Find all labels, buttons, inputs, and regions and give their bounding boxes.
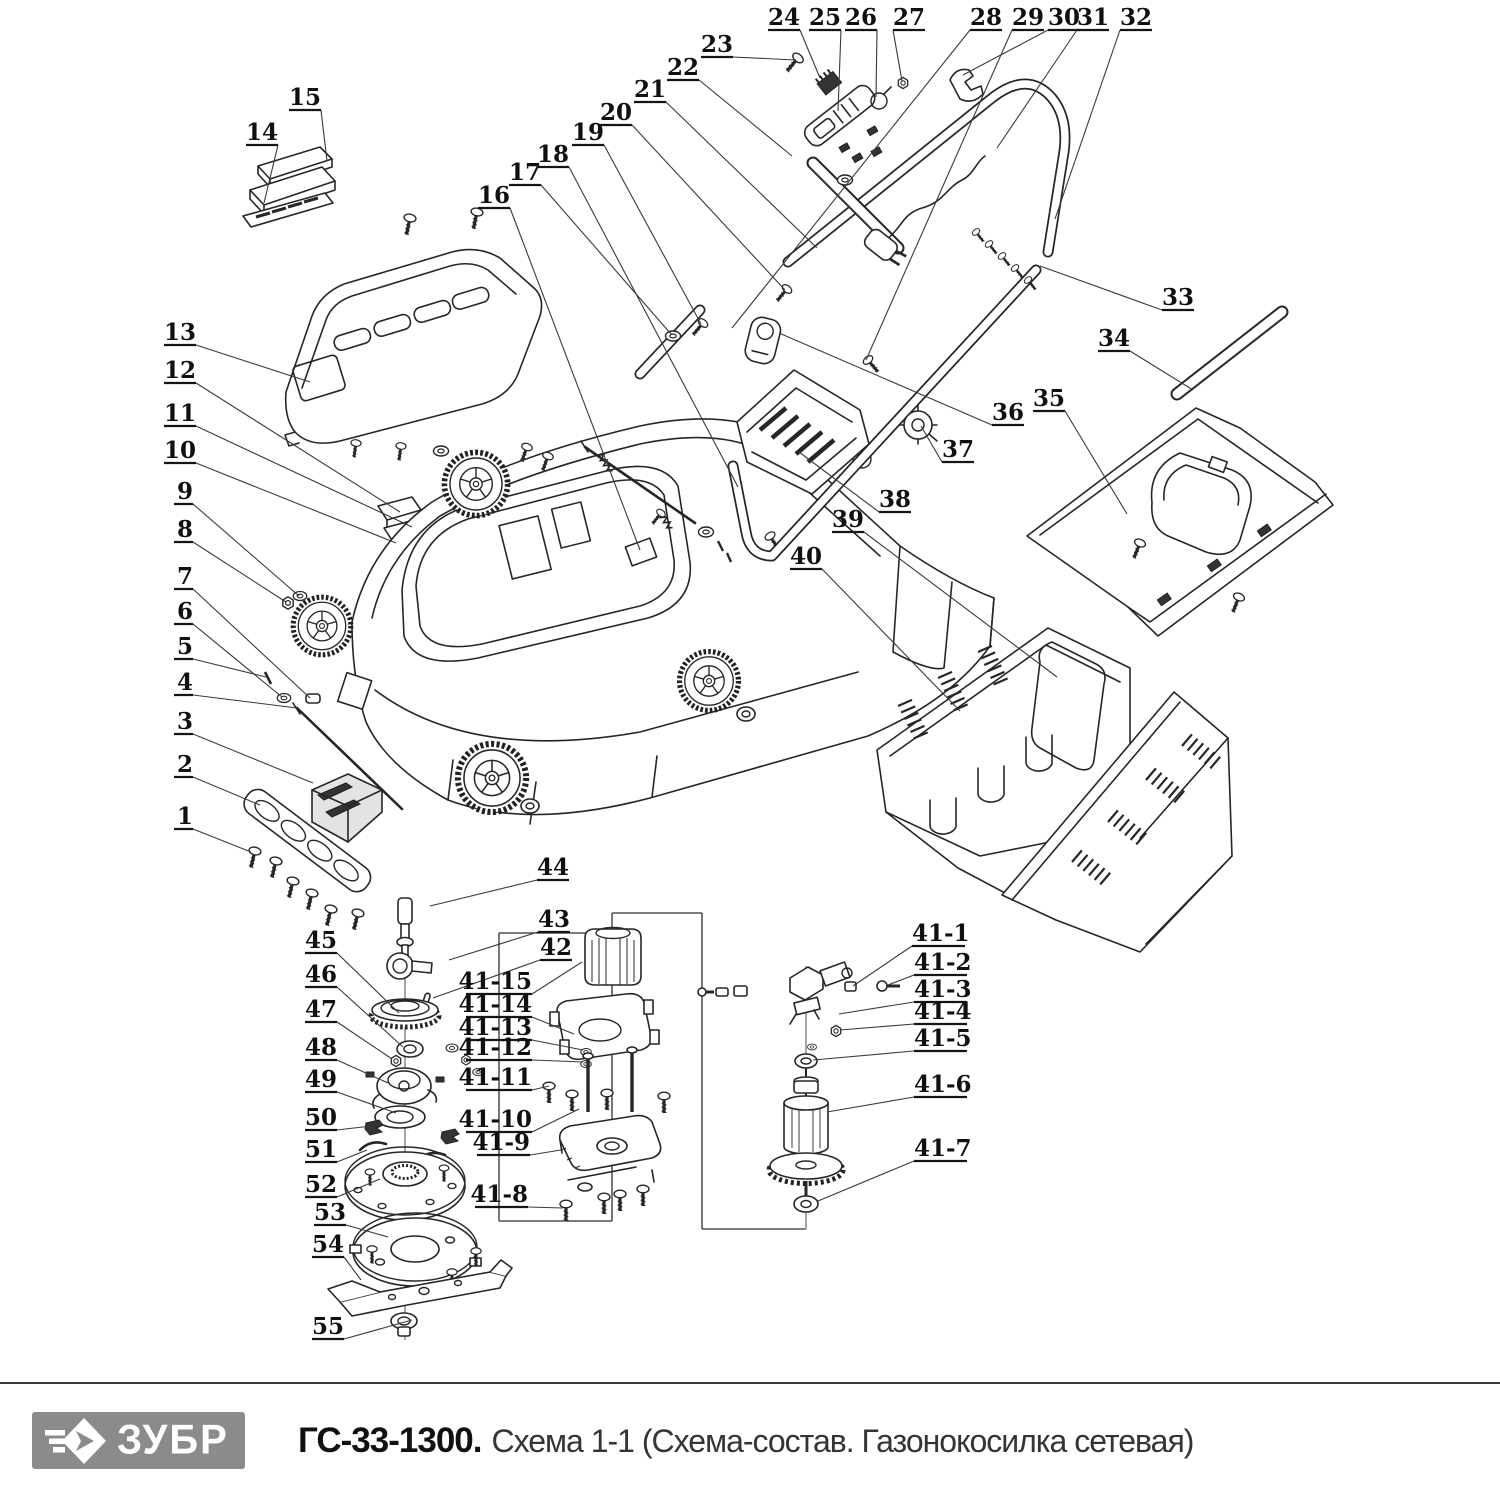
part-number-12: 12 (164, 357, 196, 384)
part-number-22: 22 (667, 54, 699, 81)
leader-line (838, 30, 841, 111)
part-number-15: 15 (289, 84, 321, 111)
part-number-18: 18 (537, 141, 569, 168)
part-number-41-11: 41-11 (458, 1064, 532, 1091)
leader-line (853, 946, 912, 986)
leader-line (532, 1060, 583, 1062)
part-number-39: 39 (832, 506, 864, 533)
part-number-10: 10 (164, 437, 196, 464)
leader-line (337, 1150, 367, 1162)
part-number-41-1: 41-1 (912, 920, 970, 947)
wheel (680, 652, 739, 711)
footer-divider (0, 1382, 1500, 1384)
leader-line (604, 145, 701, 324)
leader-line (666, 102, 817, 248)
leader-line (893, 30, 902, 81)
leader-line (1040, 266, 1162, 310)
part-number-2: 2 (177, 751, 193, 778)
part-number-37: 37 (942, 436, 974, 463)
power-cord (862, 156, 985, 270)
rotor (784, 1096, 828, 1154)
leader-line (193, 777, 260, 805)
part-number-45: 45 (305, 927, 337, 954)
stator-block (585, 928, 641, 986)
leader-line (337, 1022, 392, 1059)
part-number-11: 11 (164, 400, 196, 427)
part-number-28: 28 (970, 4, 1002, 31)
wheel (444, 452, 507, 515)
part-number-16: 16 (478, 182, 510, 209)
part-number-1: 1 (177, 803, 193, 830)
part-number-41-2: 41-2 (914, 949, 972, 976)
spindle-bolt (397, 898, 413, 957)
part-number-44: 44 (537, 854, 569, 881)
part-number-8: 8 (177, 516, 193, 543)
part-number-43: 43 (538, 906, 570, 933)
leader-line (876, 30, 877, 97)
leader-line (888, 975, 914, 985)
leader-line (632, 125, 785, 290)
leader-line (921, 426, 942, 462)
long-screws (583, 1047, 637, 1112)
leader-line (732, 30, 970, 328)
part-number-47: 47 (305, 996, 337, 1023)
part-number-40: 40 (790, 543, 822, 570)
cam-lock-lever (743, 315, 783, 366)
part-number-50: 50 (305, 1104, 337, 1131)
sheet-description: Схема 1-1 (Схема-состав. Газонокосилка с… (491, 1423, 1193, 1460)
leader-line (866, 30, 1012, 360)
part-number-33: 33 (1162, 284, 1194, 311)
drive-pulley (371, 999, 439, 1027)
armature-column (698, 962, 900, 1230)
brush-holder-bracket (790, 962, 852, 1024)
leader-line (337, 1060, 388, 1083)
part-number-41-4: 41-4 (914, 998, 972, 1025)
leader-line (800, 30, 820, 78)
leader-line (193, 659, 266, 677)
part-number-27: 27 (893, 4, 925, 31)
leader-line (193, 624, 282, 697)
part-number-41-8: 41-8 (470, 1181, 528, 1208)
leader-line (963, 30, 1048, 75)
leader-line (193, 829, 251, 852)
part-number-25: 25 (809, 4, 841, 31)
wheel (293, 597, 351, 655)
leader-line (541, 185, 671, 334)
part-number-30: 30 (1048, 4, 1080, 31)
part-number-26: 26 (845, 4, 877, 31)
rear-housing (1027, 408, 1333, 636)
leader-line (193, 504, 299, 596)
part-number-21: 21 (634, 76, 666, 103)
fan-gear (769, 1153, 843, 1184)
leader-line (449, 932, 538, 960)
blade-flange-disc (345, 1147, 465, 1220)
part-number-9: 9 (177, 478, 193, 505)
part-number-51: 51 (305, 1136, 337, 1163)
part-number-31: 31 (1077, 4, 1109, 31)
zubr-diamond-arrow-icon (44, 1415, 108, 1467)
part-number-41-9: 41-9 (472, 1129, 530, 1156)
part-number-24: 24 (768, 4, 800, 31)
leader-line (827, 1097, 914, 1112)
part-number-42: 42 (540, 934, 572, 961)
part-number-41-5: 41-5 (914, 1025, 972, 1052)
leader-line (840, 1024, 914, 1030)
clutch-housing (366, 1068, 444, 1108)
leader-line (839, 1002, 914, 1014)
part-number-20: 20 (600, 99, 632, 126)
leader-line (430, 880, 537, 906)
blade-adapter (350, 1213, 481, 1286)
part-number-32: 32 (1120, 4, 1152, 31)
part-number-53: 53 (314, 1199, 346, 1226)
motor-top-cover (285, 207, 542, 446)
part-number-7: 7 (177, 563, 193, 590)
leader-line (193, 734, 313, 783)
leader-line (1130, 351, 1193, 390)
leader-line (196, 463, 396, 543)
leader-line (699, 80, 792, 156)
part-number-41-12: 41-12 (458, 1034, 532, 1061)
battery-cover-parts (243, 147, 335, 227)
part-number-41-7: 41-7 (914, 1135, 972, 1162)
leader-line (530, 1150, 561, 1155)
field-coil-housing (550, 994, 659, 1060)
part-number-49: 49 (305, 1066, 337, 1093)
part-number-54: 54 (312, 1231, 344, 1258)
rear-parts (1027, 312, 1333, 636)
leader-line (532, 962, 582, 994)
part-number-52: 52 (305, 1171, 337, 1198)
switch-box (782, 51, 907, 185)
part-number-55: 55 (312, 1313, 344, 1340)
brush-pack (814, 68, 841, 95)
part-number-13: 13 (164, 319, 196, 346)
leader-line (733, 57, 796, 60)
sheet-title: ГС-33-1300. Схема 1-1 (Схема-состав. Газ… (298, 1408, 1193, 1474)
part-number-48: 48 (305, 1034, 337, 1061)
footer: ЗУБР ГС-33-1300. Схема 1-1 (Схема-состав… (0, 1398, 1500, 1498)
part-number-14: 14 (246, 119, 278, 146)
leader-line (813, 1051, 914, 1060)
exploded-view-drawing: 1312111098765432114151617181920212223242… (0, 0, 1500, 1500)
motor-base-plate (560, 1116, 661, 1182)
switch-plate-block (312, 774, 382, 842)
part-number-41-6: 41-6 (914, 1071, 972, 1098)
handle-clamp (950, 69, 983, 101)
part-number-46: 46 (305, 961, 337, 988)
part-number-3: 3 (177, 708, 193, 735)
part-number-34: 34 (1098, 325, 1130, 352)
leader-line (528, 1207, 563, 1208)
zubr-logo: ЗУБР (32, 1412, 245, 1469)
model-number: ГС-33-1300. (298, 1421, 481, 1461)
brand-name: ЗУБР (117, 1417, 229, 1464)
part-number-4: 4 (177, 669, 193, 696)
part-number-5: 5 (177, 633, 193, 660)
part-number-35: 35 (1033, 385, 1065, 412)
part-number-29: 29 (1012, 4, 1044, 31)
part-number-38: 38 (879, 486, 911, 513)
wheel (458, 744, 526, 812)
schematic-page: 1312111098765432114151617181920212223242… (0, 0, 1500, 1500)
leader-line (196, 345, 310, 382)
part-number-6: 6 (177, 598, 193, 625)
part-number-23: 23 (701, 31, 733, 58)
part-number-36: 36 (992, 399, 1024, 426)
